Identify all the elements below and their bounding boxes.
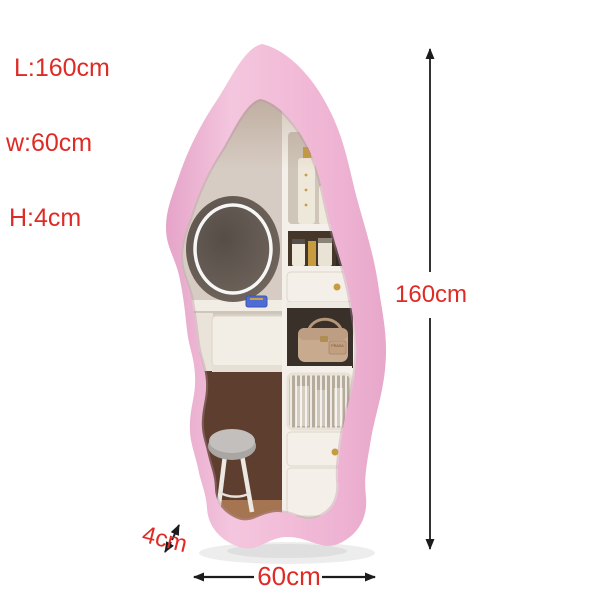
drawer-knob <box>334 284 341 291</box>
spec-text-block: L:160cm w:60cm H:4cm <box>6 6 110 281</box>
reflection-led-mirror <box>186 196 280 302</box>
height-dimension-label: 160cm <box>395 281 467 309</box>
spec-height: H:4cm <box>9 206 110 231</box>
reflection-blue-box <box>246 296 267 307</box>
reflection-drawer-top <box>287 272 351 302</box>
spec-length: L:160cm <box>14 56 110 81</box>
reflection-fluted-cabinet <box>288 374 351 429</box>
spec-width: w:60cm <box>6 131 110 156</box>
reflection-handbag: PRADA <box>287 308 353 368</box>
width-dimension-label: 60cm <box>254 561 324 592</box>
handbag-label: PRADA <box>331 344 344 348</box>
product-image: PRADA <box>0 0 600 600</box>
